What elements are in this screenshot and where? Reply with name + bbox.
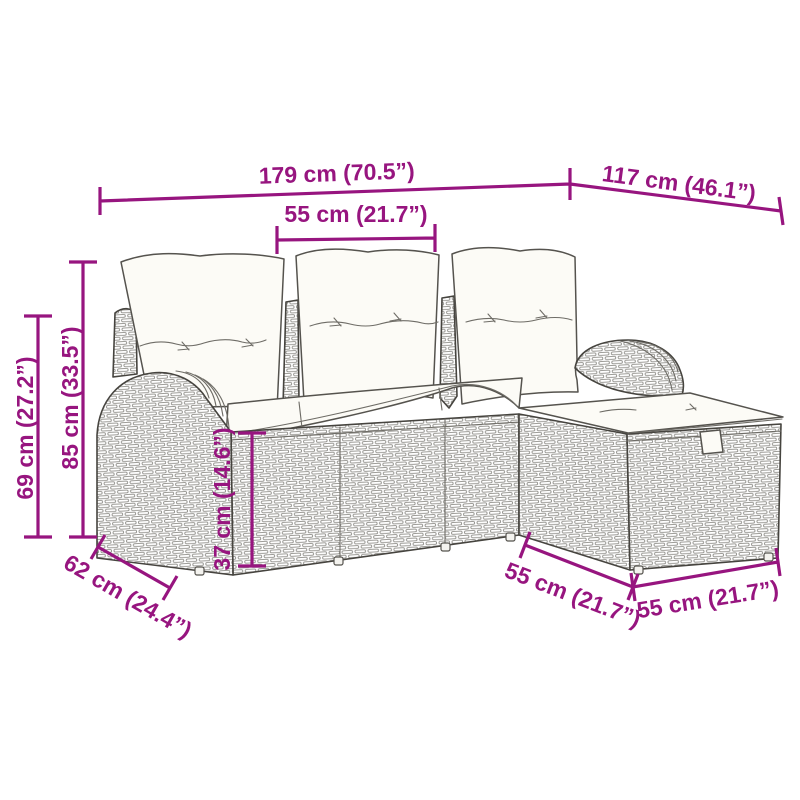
- dimension-seat-width: 55 cm (21.7”): [277, 201, 435, 254]
- dimension-armrest-height: 69 cm (27.2”): [12, 316, 52, 537]
- dimension-diagram: 179 cm (70.5”) 117 cm (46.1”) 55 cm (21.…: [0, 0, 800, 800]
- stool-side-face: [519, 414, 630, 570]
- dim-label-overall-height: 85 cm (33.5”): [57, 326, 83, 469]
- dim-label-total-width: 179 cm (70.5”): [258, 157, 415, 188]
- dim-label-seat-height: 37 cm (14.6”): [209, 427, 235, 570]
- sofa-illustration: [97, 248, 783, 575]
- dim-label-seat-width: 55 cm (21.7”): [284, 201, 427, 227]
- stool-handle: [700, 430, 723, 454]
- dimension-overall-height: 85 cm (33.5”): [57, 262, 97, 537]
- sofa-base: [231, 414, 519, 575]
- dim-label-armrest-height: 69 cm (27.2”): [12, 356, 38, 499]
- armrest-right: [575, 340, 683, 396]
- dimension-total-depth: 117 cm (46.1”): [570, 160, 783, 225]
- diagram-canvas: 179 cm (70.5”) 117 cm (46.1”) 55 cm (21.…: [0, 0, 800, 800]
